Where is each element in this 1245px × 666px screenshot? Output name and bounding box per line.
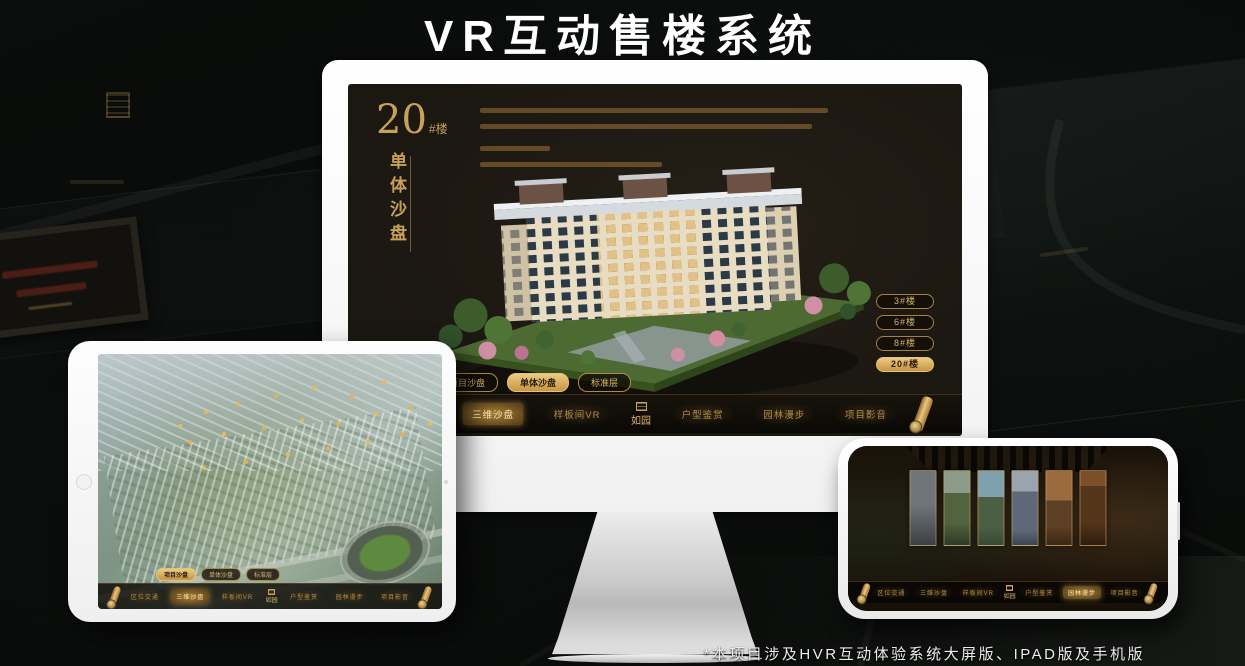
nav-item-garden-walk[interactable]: 园林漫步 [754,403,814,425]
nav-item-floorplan-gallery[interactable]: 户型鉴赏 [673,403,733,425]
building-model-illustration [414,156,884,406]
nav-item-3d-sandtable[interactable]: 三维沙盘 [463,403,523,425]
nav-item-model-room-vr[interactable]: 样板间VR [958,586,999,599]
nav-item-3d-sandtable[interactable]: 三维沙盘 [171,589,209,604]
sub-tab-single-building[interactable]: 单体沙盘 [507,373,569,392]
scroll-menu-icon[interactable] [912,395,935,433]
phone-side-button [1177,502,1180,540]
panorama-card[interactable] [1012,470,1039,546]
sandtable-sub-tabs: 项目沙盘 单体沙盘 标准层 [436,373,631,392]
intro-text-line [480,108,828,113]
nav-item-3d-sandtable[interactable]: 三维沙盘 [915,586,953,599]
nav-item-location-traffic[interactable]: 区位交通 [872,586,910,599]
nav-item-model-room-vr[interactable]: 样板间VR [217,589,258,604]
tablet-screen: 项目沙盘 单体沙盘 标准层 区位交通 三维沙盘 样板间VR 如园 户型鉴赏 园林… [98,354,442,609]
monitor-stand [552,512,758,660]
scroll-menu-icon[interactable] [108,585,122,608]
brand-logo-text: 如园 [631,412,651,427]
heading-divider [410,156,411,252]
sub-tab-standard-floor[interactable]: 标准层 [246,568,280,581]
nav-item-floorplan-gallery[interactable]: 户型鉴赏 [285,589,323,604]
brand-logo: 如园 [1004,585,1016,600]
floor-button-20[interactable]: 20#楼 [876,357,934,372]
nav-item-floorplan-gallery[interactable]: 户型鉴赏 [1020,586,1058,599]
intro-text-line [480,124,812,129]
tablet-camera [444,480,448,484]
floor-button-3[interactable]: 3#楼 [876,294,934,309]
panorama-card[interactable] [1080,470,1107,546]
sub-tab-standard-floor[interactable]: 标准层 [578,373,631,392]
nav-item-project-media[interactable]: 项目影音 [836,403,896,425]
scroll-menu-icon[interactable] [857,582,870,603]
building-number-suffix: #楼 [429,122,448,136]
brand-logo-text: 如园 [266,595,278,604]
panorama-card[interactable] [1046,470,1073,546]
building-heading: 20#楼 [376,100,448,140]
nav-item-project-media[interactable]: 项目影音 [376,589,414,604]
main-nav-bar: 区位交通 三维沙盘 样板间VR 如园 户型鉴赏 园林漫步 项目影音 [98,583,442,609]
nav-item-project-media[interactable]: 项目影音 [1106,586,1144,599]
nav-item-location-traffic[interactable]: 区位交通 [126,589,164,604]
panorama-card-gallery [910,470,1107,546]
nav-item-model-room-vr[interactable]: 样板间VR [545,403,610,425]
intro-text-line [480,146,550,151]
floor-button-group: 3#楼 6#楼 8#楼 20#楼 [876,294,934,372]
pergola-silhouette [906,446,1111,472]
background-map-label [1040,247,1088,258]
phone-device: 区位交通 三维沙盘 样板间VR 如园 户型鉴赏 园林漫步 项目影音 [838,438,1178,619]
panorama-card[interactable] [978,470,1005,546]
phone-screen: 区位交通 三维沙盘 样板间VR 如园 户型鉴赏 园林漫步 项目影音 [848,446,1168,611]
nav-item-garden-walk[interactable]: 园林漫步 [331,589,369,604]
sub-tab-project-sandtable[interactable]: 项目沙盘 [156,568,196,581]
scroll-menu-icon[interactable] [1145,582,1158,603]
background-seal-logo [106,92,130,118]
brand-logo-text: 如园 [1004,591,1016,600]
nav-item-garden-walk[interactable]: 园林漫步 [1063,586,1101,599]
building-number: 20 [376,97,427,143]
scroll-menu-icon[interactable] [418,585,432,608]
promo-canvas: VR互动售楼系统 20#楼 单体沙盘 [0,0,1245,666]
tablet-home-button [76,474,92,490]
brand-logo: 如园 [266,589,278,604]
panorama-card[interactable] [944,470,971,546]
sub-tab-single-building[interactable]: 单体沙盘 [201,568,241,581]
footnote: *本项目涉及HVR互动体验系统大屏版、IPAD版及手机版 [704,643,1145,664]
building-number-badges [178,424,182,428]
page-title: VR互动售楼系统 [0,0,1245,64]
floor-button-6[interactable]: 6#楼 [876,315,934,330]
tablet-device: 项目沙盘 单体沙盘 标准层 区位交通 三维沙盘 样板间VR 如园 户型鉴赏 园林… [68,341,456,622]
background-map-label [70,180,124,184]
main-nav-bar: 区位交通 三维沙盘 样板间VR 如园 户型鉴赏 园林漫步 项目影音 [848,581,1168,603]
background-plaque [0,216,149,339]
building-subtitle-vertical: 单体沙盘 [384,152,409,248]
floor-button-8[interactable]: 8#楼 [876,336,934,351]
brand-logo: 如园 [631,402,651,427]
panorama-card[interactable] [910,470,937,546]
sandtable-sub-tabs: 项目沙盘 单体沙盘 标准层 [156,568,280,581]
brand-seal-icon [636,402,647,411]
